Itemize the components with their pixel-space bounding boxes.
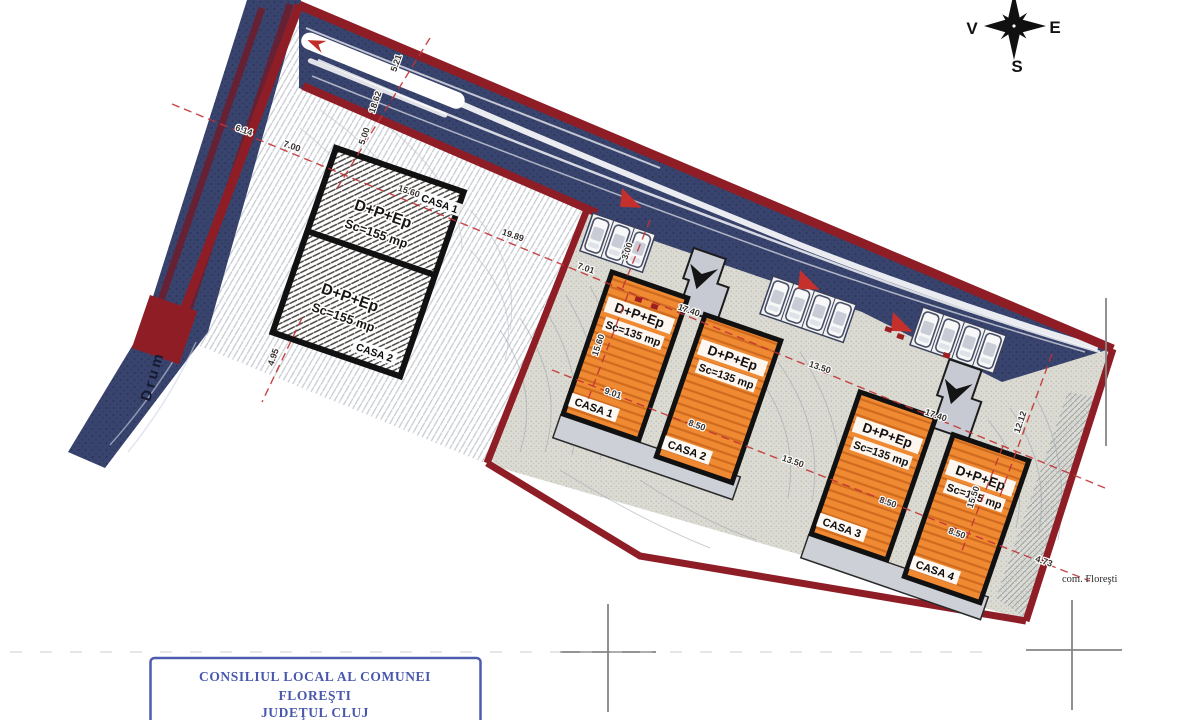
site-plan-page: D+P+Ep Sc=135 mp CASA 1 D+P+Ep Sc=135 mp…	[0, 0, 1193, 720]
stamp-line1: CONSILIUL LOCAL AL COMUNEI	[199, 669, 431, 684]
compass-rose: V E S	[966, 0, 1060, 76]
compass-west-label: V	[966, 19, 978, 38]
stamp-line3: JUDEŢUL CLUJ	[261, 705, 369, 720]
compass-south-label: S	[1011, 57, 1022, 76]
official-stamp: CONSILIUL LOCAL AL COMUNEI FLOREŞTI JUDE…	[10, 652, 985, 720]
site-plan-drawing: D+P+Ep Sc=135 mp CASA 1 D+P+Ep Sc=135 mp…	[0, 0, 1193, 720]
stamp-line2: FLOREŞTI	[278, 688, 351, 703]
locality-label: com. Floreşti	[1062, 574, 1117, 585]
compass-east-label: E	[1049, 18, 1060, 37]
